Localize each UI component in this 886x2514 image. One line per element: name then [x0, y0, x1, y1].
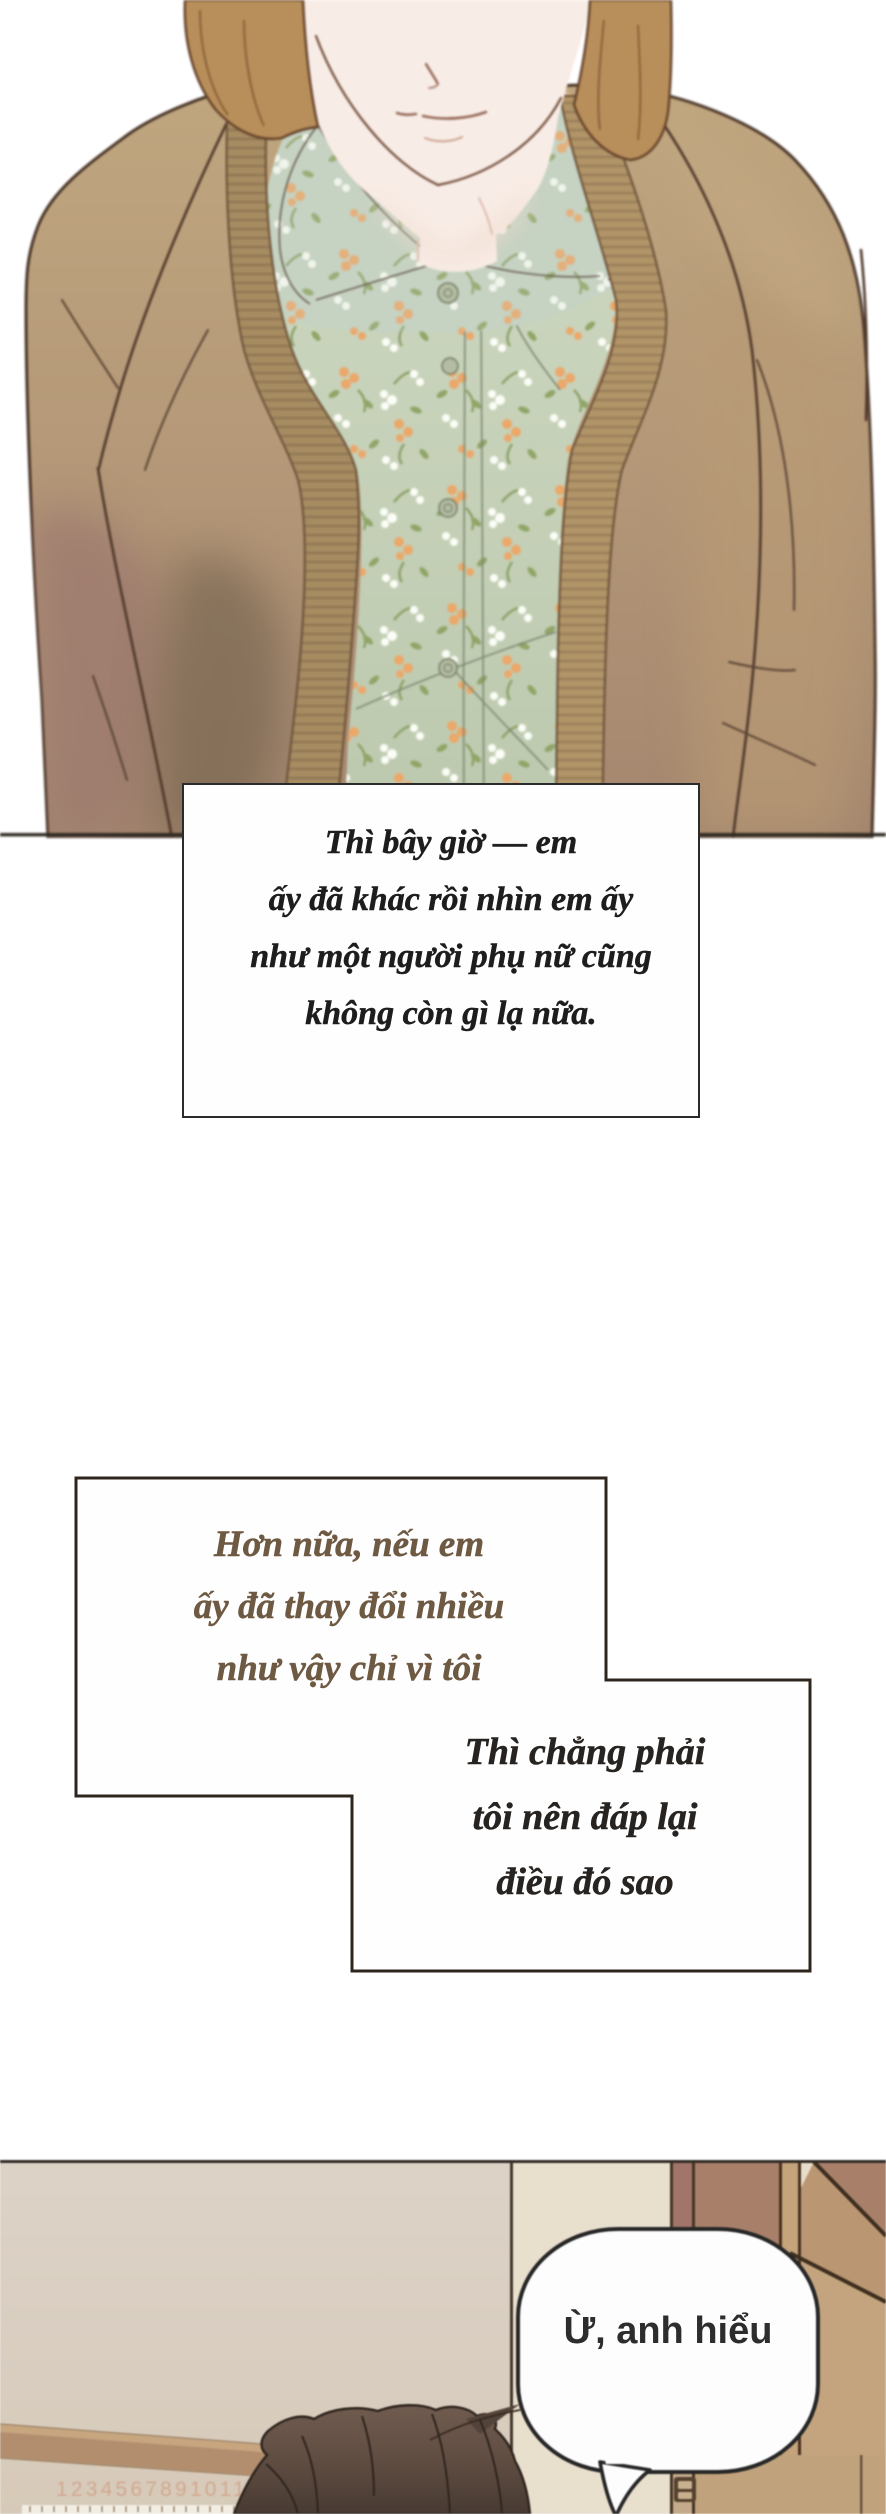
- svg-text:1234567891011: 1234567891011: [56, 2478, 248, 2501]
